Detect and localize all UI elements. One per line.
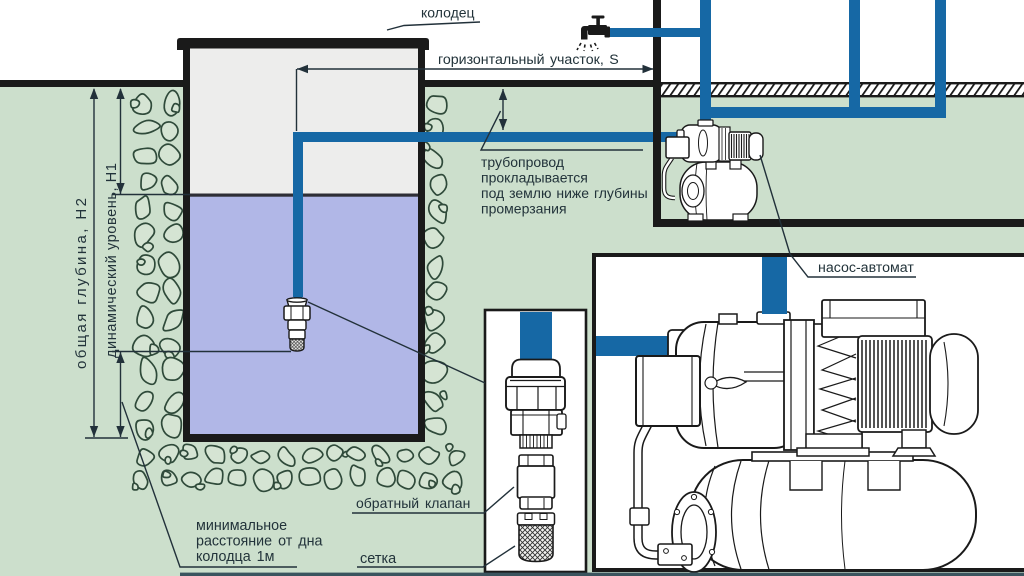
svg-text:насос-автомат: насос-автомат bbox=[818, 260, 914, 276]
svg-text:колодец: колодец bbox=[421, 5, 475, 21]
svg-text:обратный клапан: обратный клапан bbox=[356, 495, 470, 511]
svg-text:сетка: сетка bbox=[360, 551, 397, 567]
svg-text:общая глубина, Н2: общая глубина, Н2 bbox=[73, 196, 90, 369]
svg-text:динамический уровень, Н1: динамический уровень, Н1 bbox=[104, 162, 120, 358]
svg-text:горизонтальный участок, S: горизонтальный участок, S bbox=[438, 52, 619, 68]
